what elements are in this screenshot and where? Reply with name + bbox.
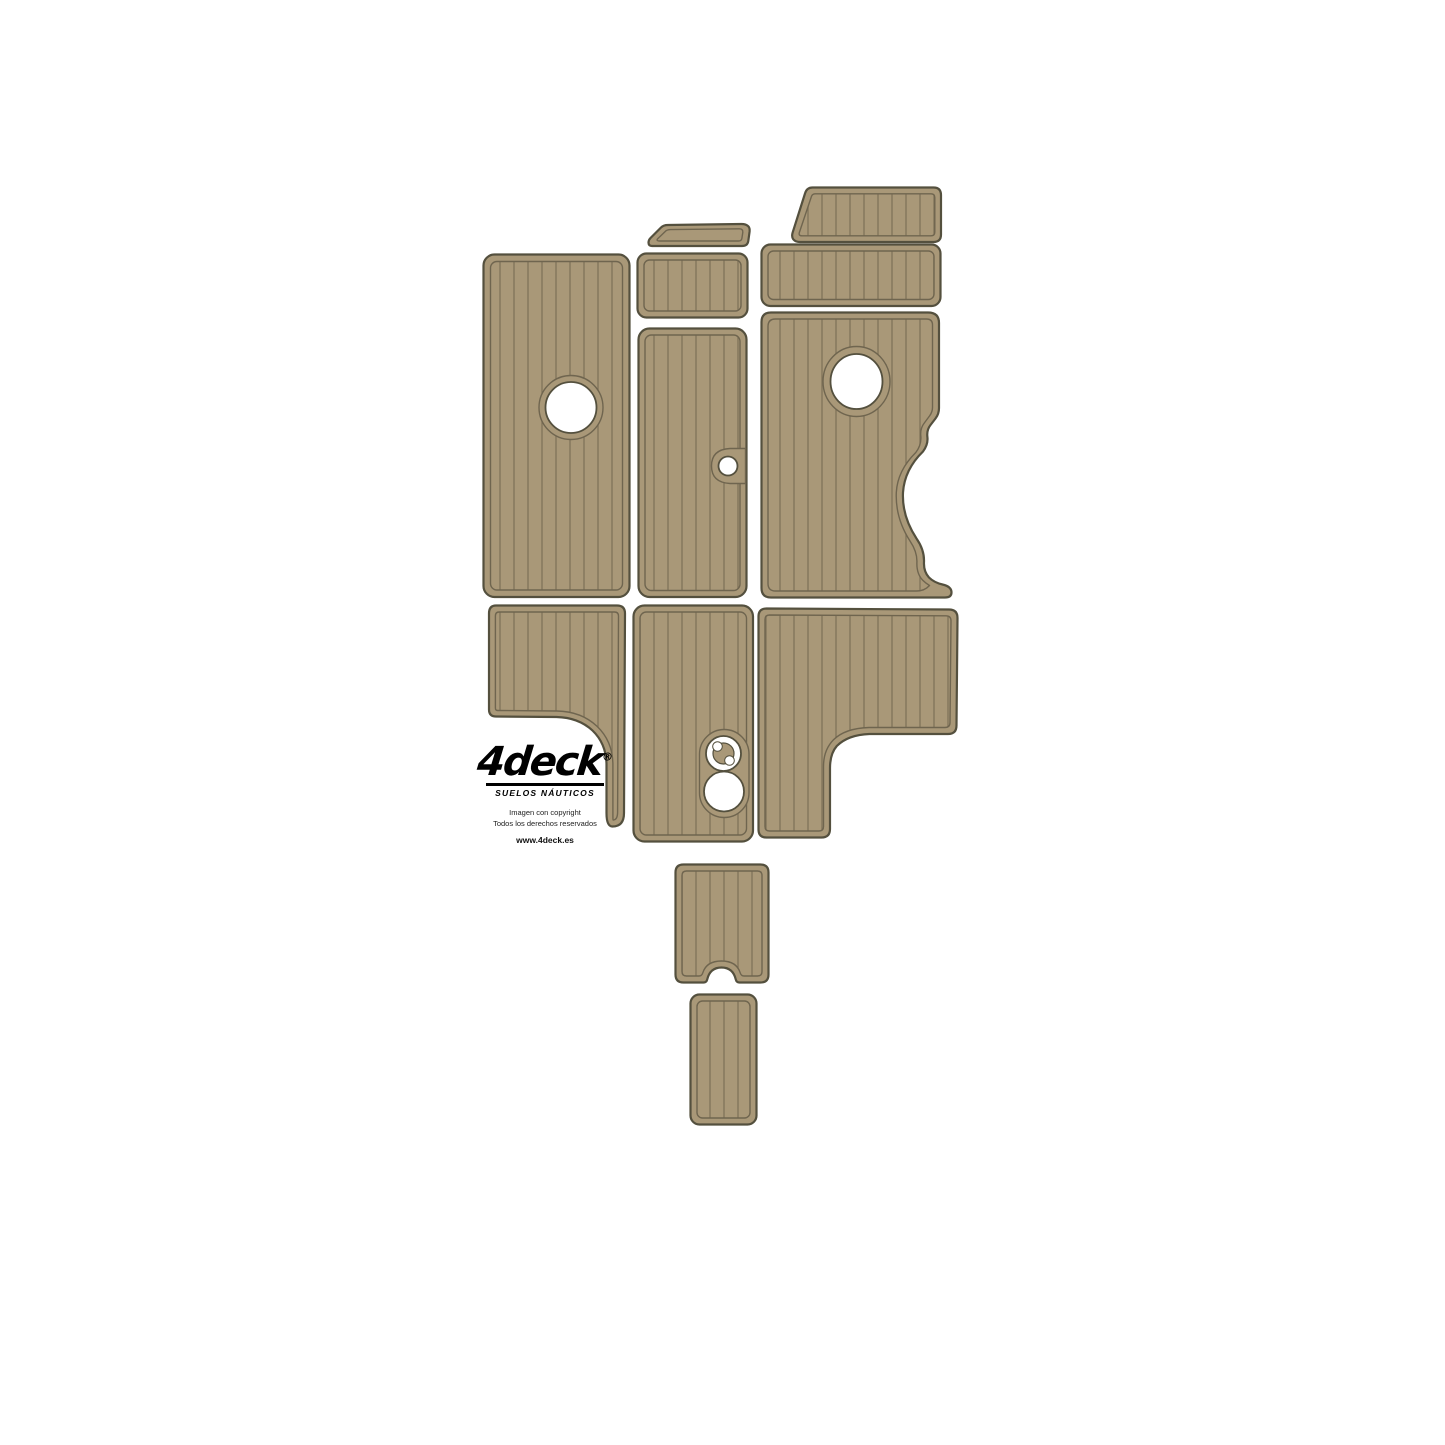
brand-block: 4deck® SUELOS NÁUTICOS Imagen con copyri… (440, 742, 650, 845)
deck-pad-large-left (484, 255, 630, 598)
logo-wordmark: 4deck® (438, 742, 652, 782)
latch-notch (713, 742, 723, 752)
registered-mark: ® (601, 751, 613, 764)
pad-planks (682, 871, 762, 976)
deck-pad-small-bottom (691, 995, 757, 1125)
deck-pad-small-center (638, 254, 748, 318)
pad-planks (697, 1001, 750, 1118)
deck-pad-l-shaped-right (759, 609, 958, 838)
pad-planks (644, 260, 741, 311)
logo-tagline: SUELOS NÁUTICOS (440, 788, 650, 798)
deck-pad-hatch-center (634, 606, 754, 842)
product-image: 4deck® SUELOS NÁUTICOS Imagen con copyri… (0, 0, 1445, 1445)
deck-pad-trapezoid-top-right (792, 188, 941, 243)
deck-pad-tall-center (639, 329, 747, 598)
logo-text: 4deck (475, 739, 604, 785)
pad-outline (649, 224, 750, 246)
round-cutout (546, 382, 597, 433)
latch-notch (725, 756, 735, 766)
pad-planks (768, 251, 934, 300)
copyright-line-2: Todos los derechos reservados (440, 818, 650, 829)
round-cutout (704, 772, 744, 812)
deck-pad-wedge-top (649, 224, 750, 246)
pad-planks (799, 194, 935, 236)
deck-pad-wide-right (762, 245, 941, 307)
pad-planks (765, 615, 951, 831)
website-url: www.4deck.es (440, 835, 650, 845)
deck-pad-scalloped-right (762, 313, 952, 598)
deck-pad-notched-step (676, 865, 769, 983)
copyright-line-1: Imagen con copyright (440, 807, 650, 818)
round-cutout (831, 354, 883, 409)
small-round-cutout (719, 457, 738, 476)
deck-pads-graphic (0, 0, 1445, 1445)
